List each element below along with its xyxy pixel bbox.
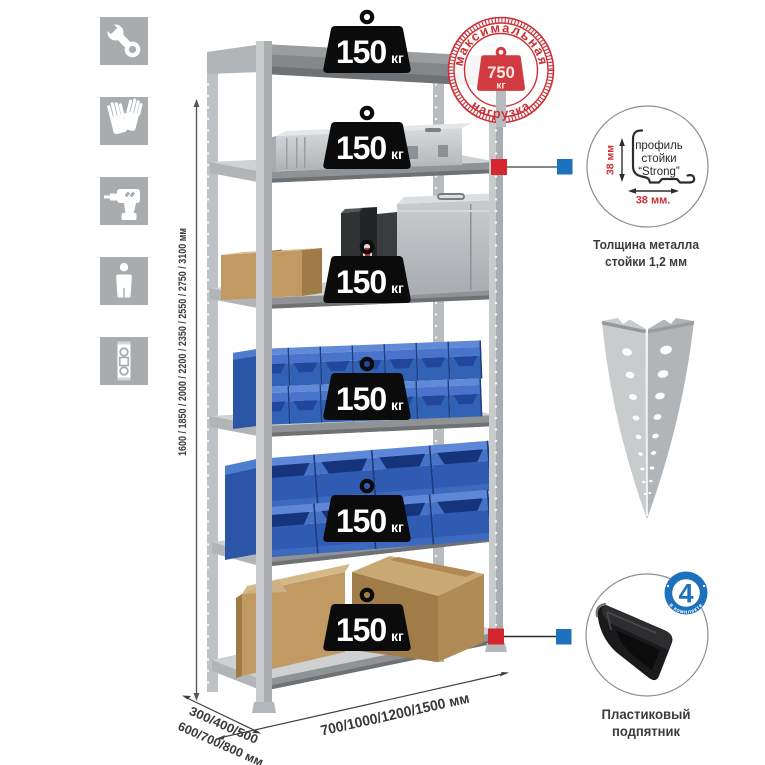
svg-text:подпятник: подпятник xyxy=(612,724,680,739)
svg-text:38 мм.: 38 мм. xyxy=(636,195,671,207)
svg-text:Толщина металла: Толщина металла xyxy=(593,237,700,252)
svg-text:“Strong”: “Strong” xyxy=(638,166,680,178)
svg-text:750: 750 xyxy=(487,63,515,82)
svg-text:стойки: стойки xyxy=(641,153,676,165)
svg-text:стойки 1,2 мм: стойки 1,2 мм xyxy=(605,254,687,269)
svg-text:38 мм: 38 мм xyxy=(605,145,617,175)
svg-text:кг: кг xyxy=(496,80,505,91)
svg-text:4: 4 xyxy=(678,579,693,609)
svg-text:профиль: профиль xyxy=(635,140,683,152)
svg-text:1600 / 1850 / 2000 / 2200 / 23: 1600 / 1850 / 2000 / 2200 / 2350 / 2550 … xyxy=(177,228,189,456)
svg-text:Пластиковый: Пластиковый xyxy=(602,707,691,722)
